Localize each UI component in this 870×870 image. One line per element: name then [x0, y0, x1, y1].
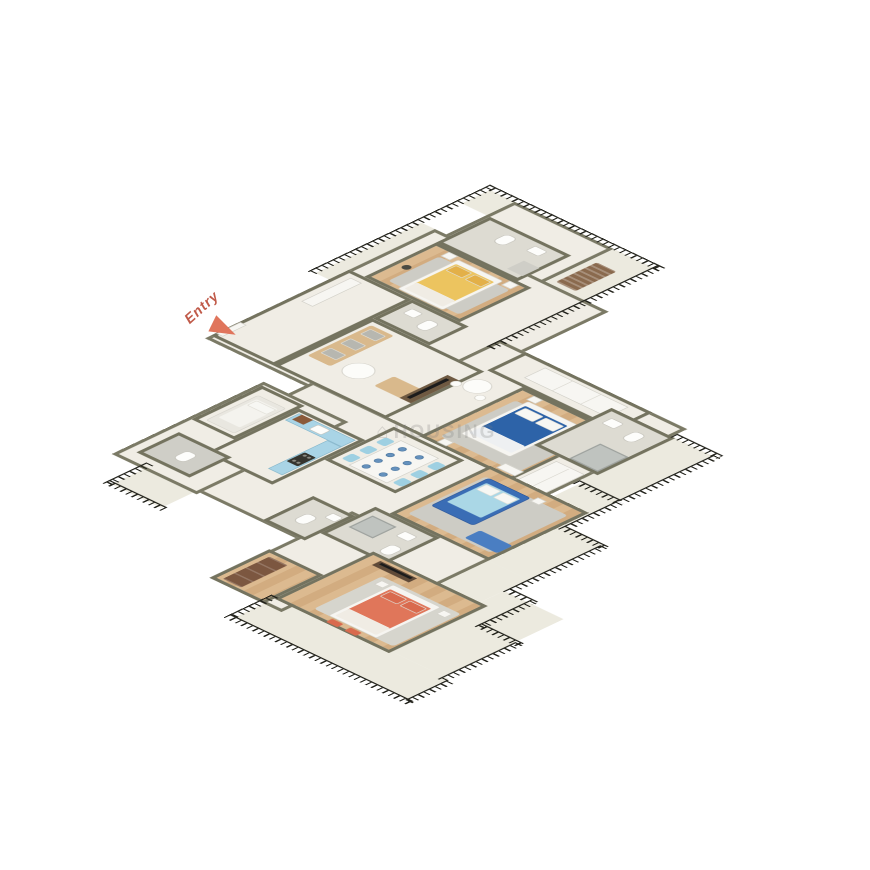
plate [360, 463, 373, 469]
plate [413, 454, 426, 460]
washbasin [402, 308, 423, 318]
toilet [620, 431, 647, 444]
dining-table [349, 440, 440, 483]
plate [372, 458, 385, 464]
washbasin [324, 513, 344, 522]
washbasin [601, 418, 624, 429]
plate [396, 446, 409, 452]
plate [384, 452, 397, 458]
wardrobe-seam [533, 469, 569, 486]
plate [377, 471, 390, 477]
toilet [172, 450, 199, 463]
wardrobe-brown [223, 557, 288, 588]
washbasin [395, 531, 418, 542]
plate [389, 466, 402, 472]
toilet [292, 513, 319, 526]
watermark: ⌂HOUSING [376, 420, 496, 444]
shower [349, 516, 397, 539]
hall-closet [301, 278, 362, 307]
washbasin [525, 246, 548, 257]
toilet [414, 319, 441, 332]
coffee-table [334, 360, 382, 383]
toilet [491, 234, 518, 247]
wardrobe-seam [552, 381, 573, 391]
watermark-text: HOUSING [394, 422, 497, 443]
watermark-logo-icon: ⌂ [376, 420, 391, 443]
floorplan-render: Entry ⌂HOUSING [0, 0, 870, 870]
wardrobe-seam [581, 394, 602, 404]
plate [401, 460, 414, 466]
